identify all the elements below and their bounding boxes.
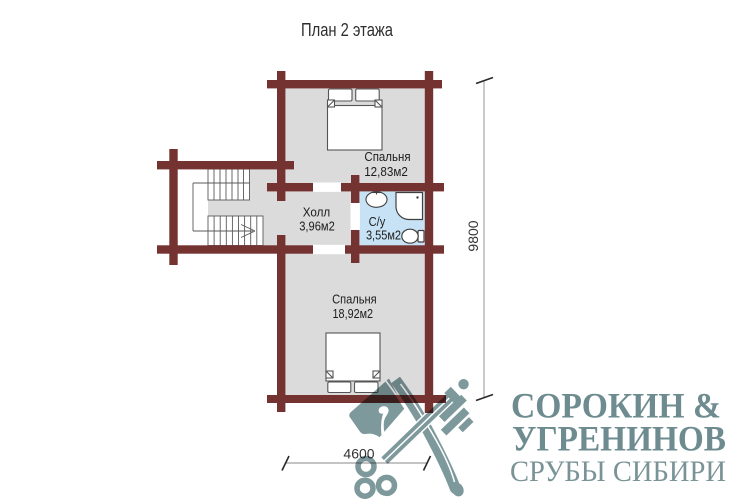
svg-text:СРУБЫ СИБИРИ: СРУБЫ СИБИРИ bbox=[510, 455, 726, 488]
svg-text:УГРЕНИНОВ: УГРЕНИНОВ bbox=[512, 419, 726, 459]
